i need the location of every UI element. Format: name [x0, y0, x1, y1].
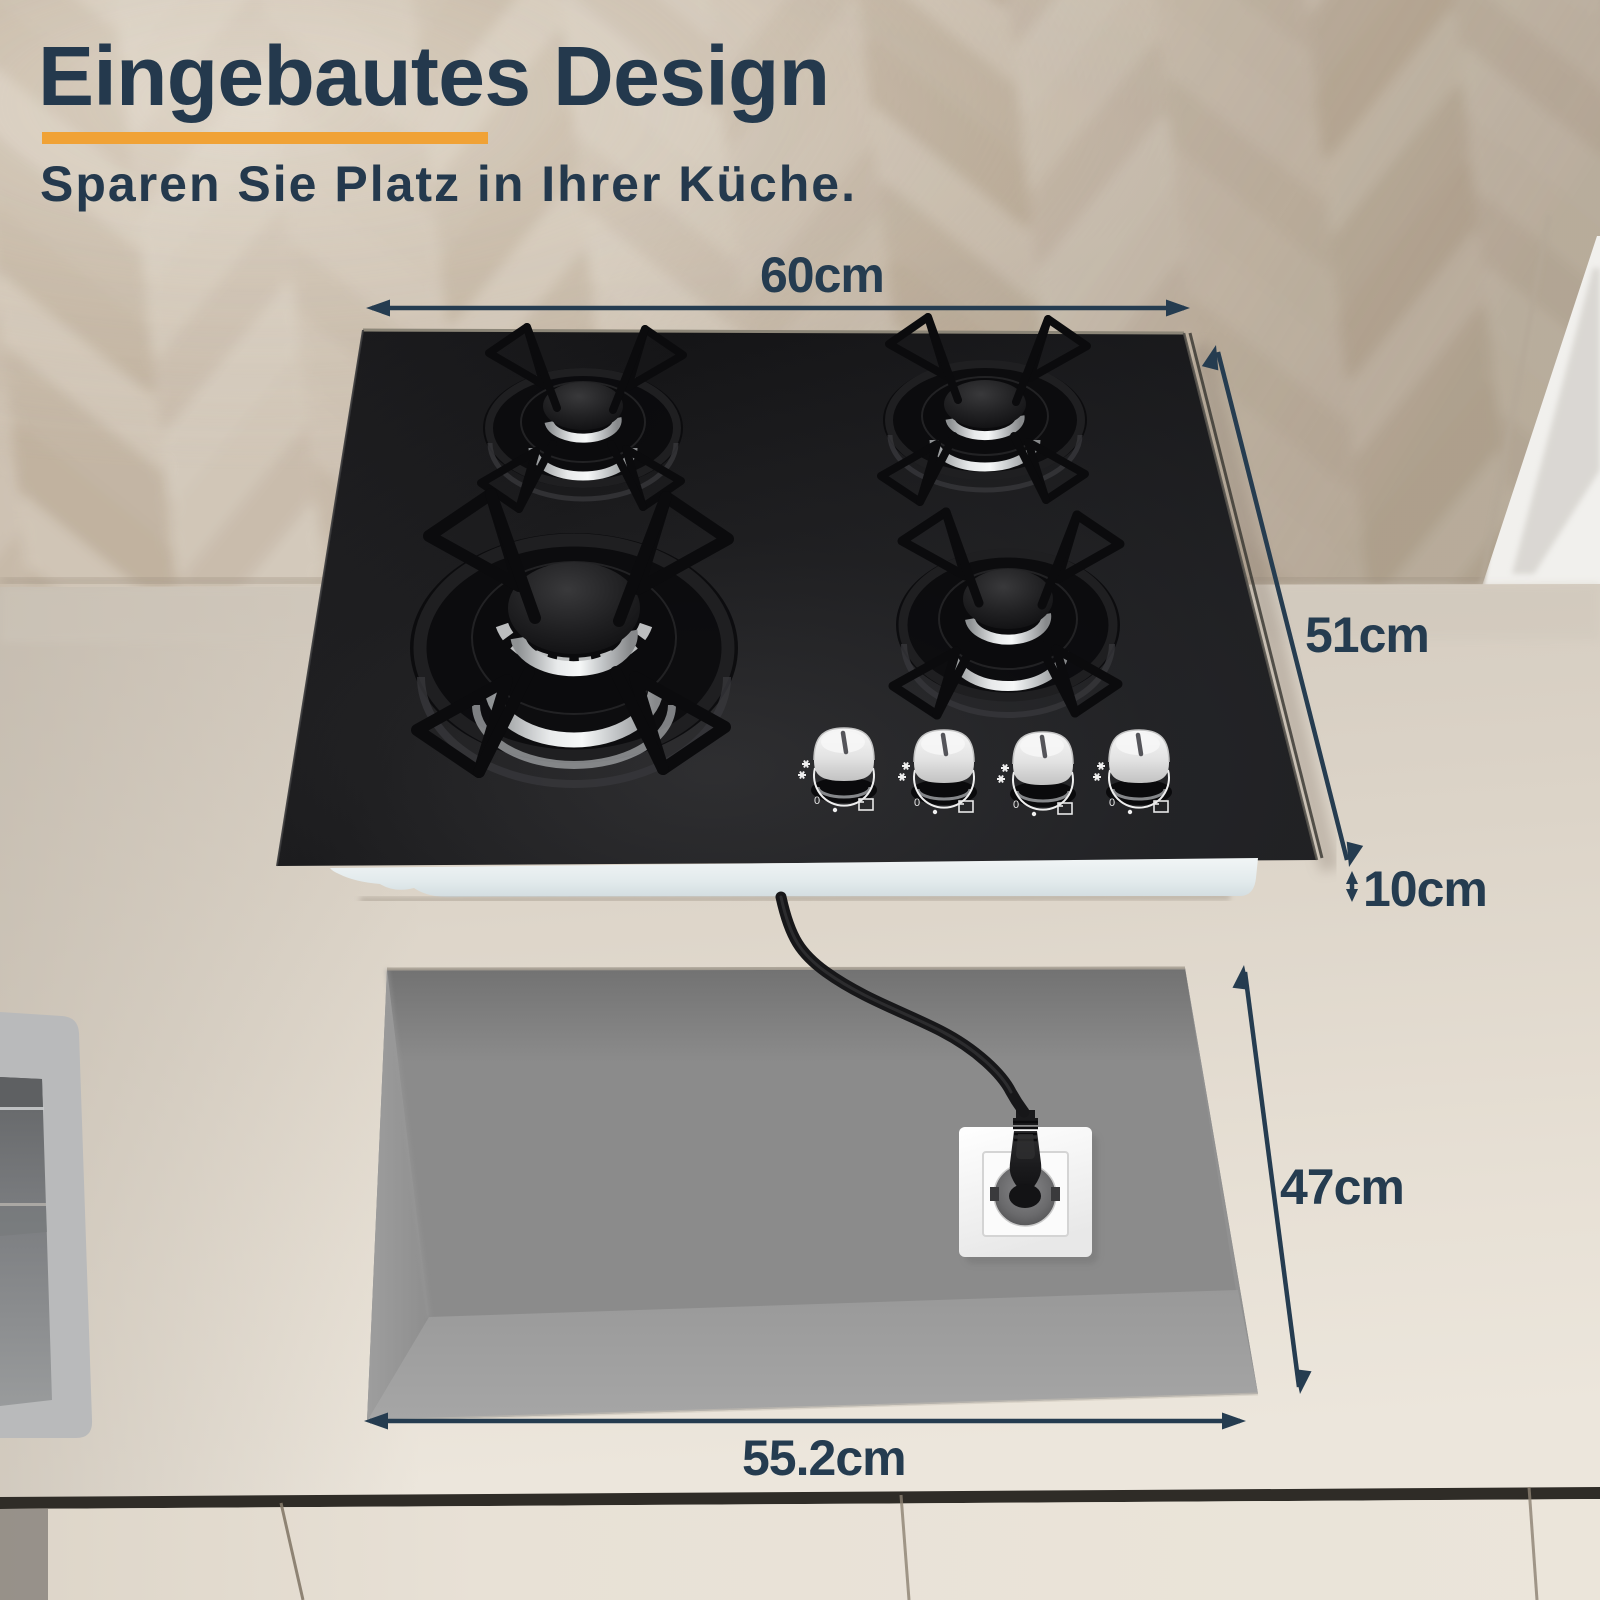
svg-text:Eingebautes Design: Eingebautes Design — [38, 29, 830, 123]
svg-text:0: 0 — [1109, 797, 1115, 809]
svg-text:60cm: 60cm — [760, 247, 884, 303]
svg-text:10cm: 10cm — [1363, 861, 1487, 917]
svg-text:0: 0 — [914, 797, 920, 809]
svg-text:47cm: 47cm — [1280, 1159, 1404, 1215]
svg-text:55.2cm: 55.2cm — [742, 1430, 906, 1486]
svg-text:0: 0 — [1013, 799, 1019, 811]
svg-text:51cm: 51cm — [1305, 607, 1429, 663]
svg-text:0: 0 — [814, 795, 820, 807]
svg-text:Sparen Sie Platz in Ihrer Küch: Sparen Sie Platz in Ihrer Küche. — [40, 156, 855, 212]
